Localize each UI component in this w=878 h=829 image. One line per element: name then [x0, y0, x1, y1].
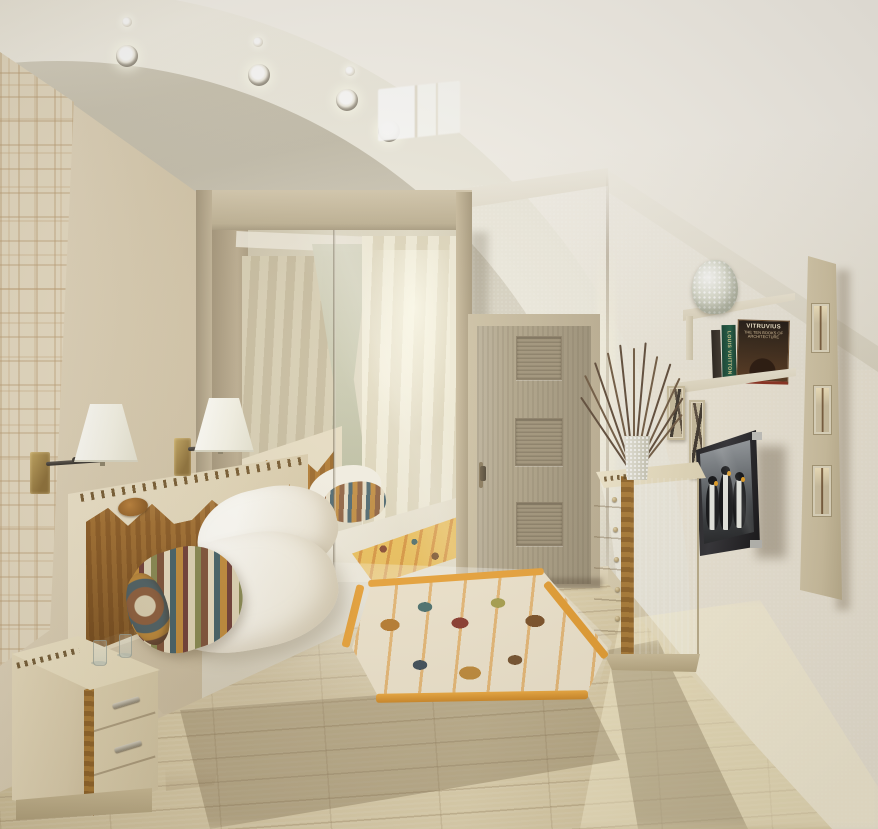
- shelf-bracket: [686, 316, 693, 360]
- lit-niche: [814, 386, 831, 434]
- book-louis-vuitton: LOUIS VUITTON: [722, 325, 737, 381]
- drinking-glass: [93, 640, 107, 666]
- drawer-knob-icon: [612, 497, 617, 502]
- spotlight-icon: [116, 45, 138, 67]
- book-dark: [711, 330, 722, 380]
- door-handle-icon: [480, 466, 486, 481]
- lamp-wall-plate: [30, 452, 50, 494]
- bedroom-render: LOUIS VUITTON VITRUVIUS THE TEN BOOKS OF…: [0, 0, 878, 829]
- door-panel: [515, 418, 563, 466]
- crystal-vase: [692, 260, 738, 314]
- door-panel: [516, 336, 562, 380]
- drawer-knob-icon: [614, 557, 619, 562]
- spotlight-small-icon: [345, 66, 355, 76]
- drawer-knob-icon: [613, 527, 618, 532]
- wardrobe-top-fascia: [196, 190, 472, 234]
- drawer-knob-icon: [615, 587, 620, 592]
- tv-screen-sheen: [700, 440, 754, 544]
- lit-niche: [813, 466, 831, 516]
- dresser-side-panel: [633, 478, 699, 658]
- spotlight-small-icon: [122, 17, 132, 27]
- window-reflection-on-ceiling: [378, 81, 460, 142]
- drinking-glass: [119, 634, 132, 658]
- book-spine-title: LOUIS VUITTON: [726, 331, 733, 375]
- lit-niche: [812, 304, 829, 352]
- spotlight-icon: [248, 64, 270, 86]
- lamp-wall-plate: [174, 438, 191, 476]
- book-cover-subtitle: THE TEN BOOKS OF ARCHITECTURE: [738, 330, 788, 340]
- book-cover-art: [746, 341, 779, 374]
- dresser-plinth: [600, 654, 700, 672]
- door-panel: [516, 502, 563, 546]
- tv-mount-bracket: [752, 432, 762, 440]
- spotlight-icon: [336, 89, 358, 111]
- tv-mount-bracket: [750, 540, 762, 548]
- spotlight-small-icon: [253, 37, 263, 47]
- drawer-knob-icon: [615, 616, 620, 621]
